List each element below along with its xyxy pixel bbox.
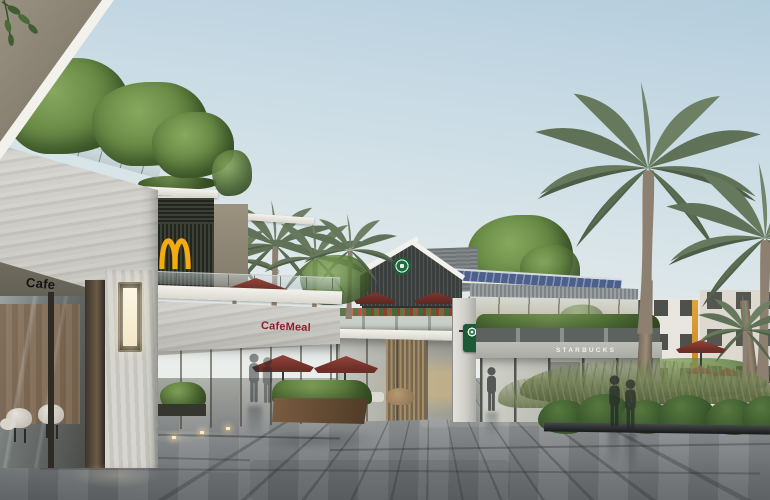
sconce-glow-panel: [123, 288, 137, 346]
ground-light: [172, 436, 176, 439]
sconce-light-pool: [70, 462, 160, 488]
scene-canvas: STARBUCKS CafeMeal Cafe: [0, 0, 770, 500]
cafemeal-sign-text: CafeMeal: [261, 320, 311, 334]
cafe-sign-text: Cafe: [25, 275, 56, 293]
entry-niche: [85, 280, 105, 468]
pedestrian: [620, 377, 641, 435]
interior-planter-box: [158, 404, 206, 416]
rooftop-tree: [212, 150, 252, 196]
cafe-storefront-glass: [0, 296, 85, 468]
bronze-door-frame: [48, 292, 54, 468]
wood-planter-box: [272, 398, 370, 424]
side-table: [370, 392, 384, 402]
pedestrian: [258, 356, 277, 406]
paving-shade-patch: [250, 460, 510, 500]
palm-tree: [535, 82, 761, 334]
ground-light: [226, 427, 230, 430]
hanging-leaves: [0, 0, 80, 70]
wall-sconce-light: [118, 282, 142, 352]
person-reflection: [248, 406, 262, 440]
horizontal-slat-band: [150, 198, 214, 224]
pedestrian: [482, 366, 501, 414]
person-reflection: [624, 432, 636, 474]
ground-light: [200, 431, 204, 434]
glass-reflection: [0, 296, 85, 468]
person-reflection: [486, 412, 498, 438]
golden-arches-icon: [158, 238, 192, 270]
wicker-chair: [386, 388, 414, 405]
person-reflection: [608, 428, 620, 468]
